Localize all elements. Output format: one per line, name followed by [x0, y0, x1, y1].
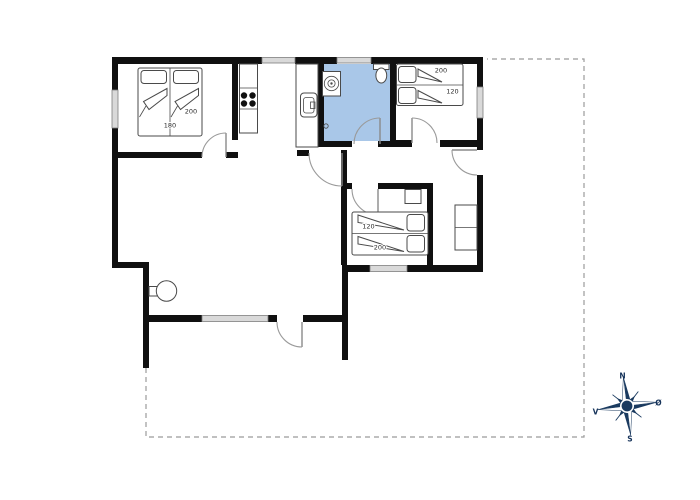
bathroom-window	[337, 58, 371, 64]
washbasin-icon	[323, 72, 341, 97]
wall-segment	[390, 64, 396, 147]
terrace-door	[277, 322, 302, 347]
bedroom2-window	[477, 87, 483, 118]
bedroom3-bed: 120 200	[352, 212, 428, 255]
pillow	[141, 71, 167, 84]
kitchen-window	[262, 58, 295, 64]
compass-east-label: Ø	[655, 399, 662, 408]
pillow	[407, 215, 425, 232]
kitchen-sink-icon	[301, 93, 318, 117]
bedroom3-door	[352, 189, 378, 215]
pillow	[399, 88, 417, 104]
wall-segment	[143, 315, 202, 322]
bedroom3-window	[370, 266, 407, 272]
bed2-width-label: 120	[446, 88, 458, 96]
doors	[202, 118, 477, 347]
bed2-length-label: 200	[435, 67, 447, 75]
compass-north-label: N	[619, 372, 625, 381]
wall-segment	[232, 64, 238, 140]
kitchen	[240, 64, 319, 147]
bed1-width-label: 180	[164, 122, 176, 130]
wall-segment	[477, 57, 483, 87]
living-room-window	[202, 316, 268, 322]
kitchen-counter	[240, 64, 258, 133]
wall-segment	[341, 189, 347, 265]
compass-rose: N Ø S V	[593, 372, 663, 444]
bed3-width-label: 120	[362, 223, 374, 231]
compass-west-label: V	[593, 408, 599, 417]
wall-segment	[342, 265, 370, 272]
wall-segment	[477, 175, 483, 272]
entrance-door	[452, 150, 477, 175]
bedroom2-bed: 200 120	[397, 64, 464, 106]
nightstand	[405, 190, 421, 204]
wood-stove-icon	[149, 281, 177, 301]
wall-segment	[378, 183, 433, 189]
floor-plan-canvas: 200 180 200 120 120 200	[0, 0, 700, 500]
bed1-length-label: 200	[185, 108, 197, 116]
wall-segment	[295, 57, 337, 64]
wall-segment	[112, 152, 202, 158]
wall-segment	[226, 152, 238, 158]
pillow	[407, 236, 425, 253]
floor-plan: 200 180 200 120 120 200	[0, 0, 700, 500]
hall-door	[309, 153, 342, 186]
bedroom2-door	[412, 118, 437, 143]
wall-segment	[112, 57, 262, 64]
bedroom1-bed: 200 180	[138, 68, 202, 136]
pillow	[399, 67, 417, 83]
bed3-length-label: 200	[374, 244, 386, 252]
wall-segment	[407, 265, 483, 272]
compass-south-label: S	[627, 435, 632, 444]
wall-segment	[303, 315, 348, 322]
pillow	[174, 71, 199, 84]
wall-segment	[391, 140, 412, 147]
wall-segment	[268, 315, 277, 322]
bedroom1-door	[202, 133, 226, 157]
wall-segment	[297, 150, 309, 156]
wall-segment	[440, 140, 483, 147]
wardrobe	[455, 205, 477, 250]
wall-segment	[342, 265, 348, 360]
wall-segment	[112, 57, 118, 90]
bedroom1-window	[112, 90, 118, 128]
wall-segment	[318, 141, 352, 147]
wall-segment	[371, 57, 483, 64]
wall-segment	[112, 128, 118, 268]
